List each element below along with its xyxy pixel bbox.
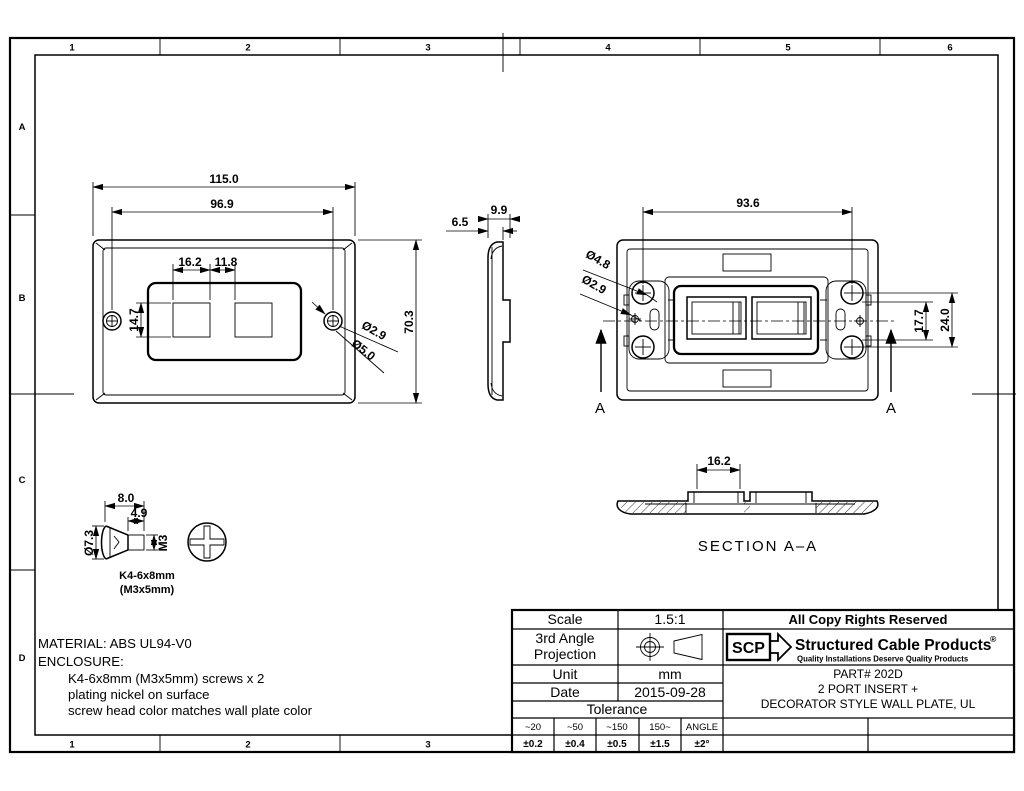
dim-boss-dia: Ø4.8 xyxy=(583,247,613,272)
dim-thread-length: 4.9 xyxy=(131,506,148,520)
dim-overall-height: 70.3 xyxy=(402,310,416,334)
screw-side-view xyxy=(102,526,145,559)
scp-logo-text: SCP xyxy=(732,640,765,657)
tolerance-value: ±0.5 xyxy=(607,739,627,750)
dim-port-gap: 11.8 xyxy=(215,255,238,269)
section-title: SECTION A–A xyxy=(698,538,818,555)
rear-view: A A 93.6 Ø4.8 Ø2.9 17.7 24.0 xyxy=(579,196,958,417)
tolerance-value: ±2° xyxy=(694,739,709,750)
note-item2: plating nickel on surface xyxy=(68,687,209,702)
tolerance-value: ±0.2 xyxy=(523,739,543,750)
side-profile xyxy=(488,242,510,400)
rear-port-right xyxy=(752,297,811,339)
keystone-port-left xyxy=(173,303,210,337)
screw-head-right xyxy=(324,312,342,330)
drawing-canvas: 1 2 3 4 5 6 1 2 3 A B C D xyxy=(0,0,1024,791)
section-hatch-left xyxy=(621,502,686,513)
zone-label: 1 xyxy=(69,740,75,751)
tolerance-header: ~20 xyxy=(525,722,541,733)
latch-tab-bottom xyxy=(723,370,771,387)
dim-front-depth: 6.5 xyxy=(452,215,469,229)
section-hatch-right xyxy=(816,502,874,513)
dim-screw-span: 96.9 xyxy=(210,197,234,211)
zone-label: 2 xyxy=(245,740,250,751)
note-material: MATERIAL: ABS UL94-V0 xyxy=(38,636,192,651)
note-item1: K4-6x8mm (M3x5mm) screws x 2 xyxy=(68,671,264,686)
drawing-sheet: 1 2 3 4 5 6 1 2 3 A B C D xyxy=(0,0,1024,791)
dim-rear-hole-dia: Ø2.9 xyxy=(579,272,609,297)
rear-plate-outline xyxy=(617,240,878,400)
projection-label-line1: 3rd Angle xyxy=(535,630,594,646)
screw-label-line1: K4-6x8mm xyxy=(119,570,175,582)
unit-value: mm xyxy=(658,666,681,682)
dim-port-width: 16.2 xyxy=(178,255,202,269)
zone-label: D xyxy=(19,653,26,664)
dim-screw-length: 8.0 xyxy=(118,491,135,505)
tolerance-header: ~150 xyxy=(606,722,627,733)
section-hatch-middle xyxy=(744,502,750,513)
date-value: 2015-09-28 xyxy=(634,684,706,700)
side-view: 9.9 6.5 xyxy=(446,203,520,400)
dim-thread-size: M3 xyxy=(156,534,170,551)
screw-detail: 8.0 4.9 Ø7.3 M3 K4-6x8mm (M3x5mm) xyxy=(82,491,226,596)
front-dim-lines xyxy=(93,182,422,403)
notes-block: MATERIAL: ABS UL94-V0 ENCLOSURE: K4-6x8m… xyxy=(38,636,313,718)
registered-mark: ® xyxy=(990,634,997,644)
tolerance-value: ±0.4 xyxy=(565,739,585,750)
dim-section-opening: 16.2 xyxy=(707,454,731,468)
title-block: Scale 1.5:1 3rd Angle Projection Unit mm… xyxy=(512,610,1014,752)
mounting-wing-left xyxy=(624,281,675,359)
dim-thickness: 9.9 xyxy=(491,203,508,217)
tolerance-header: ~50 xyxy=(567,722,583,733)
scale-label: Scale xyxy=(547,611,582,627)
dim-hole-dia: Ø2.9 xyxy=(359,318,389,343)
zone-label: B xyxy=(19,293,26,304)
part-number: PART# 202D xyxy=(833,667,903,681)
dim-screw-head-dia: Ø7.3 xyxy=(82,530,96,556)
zone-label: 1 xyxy=(69,43,75,54)
brand-name: Structured Cable Products xyxy=(795,637,991,654)
note-enclosure: ENCLOSURE: xyxy=(38,654,124,669)
zone-label: 2 xyxy=(245,43,250,54)
dim-port-height: 14.7 xyxy=(127,308,141,332)
dim-boss-pitch: 24.0 xyxy=(938,308,952,332)
dim-overall-width: 115.0 xyxy=(209,172,239,186)
front-view: 115.0 96.9 16.2 11.8 14.7 70.3 Ø2.9 Ø5.0 xyxy=(93,172,422,403)
latch-tab-top xyxy=(723,254,771,271)
zone-label: C xyxy=(19,475,26,486)
screw-label-line2: (M3x5mm) xyxy=(120,584,175,596)
tolerance-value: ±1.5 xyxy=(650,739,670,750)
screw-recess-profile xyxy=(114,536,119,549)
zone-label: 5 xyxy=(785,43,791,54)
screw-front-view xyxy=(188,523,226,561)
zone-label: 3 xyxy=(425,740,430,751)
zone-label: 4 xyxy=(605,43,611,54)
zone-label: A xyxy=(19,122,26,133)
date-label: Date xyxy=(550,684,580,700)
keystone-port-right xyxy=(235,303,272,337)
tolerance-label: Tolerance xyxy=(587,701,648,717)
note-item3: screw head color matches wall plate colo… xyxy=(68,703,313,718)
part-desc-line1: 2 PORT INSERT + xyxy=(818,682,918,696)
unit-label: Unit xyxy=(553,666,578,682)
zone-label: 3 xyxy=(425,43,430,54)
rear-port-left xyxy=(687,297,746,339)
part-desc-line2: DECORATOR STYLE WALL PLATE, UL xyxy=(761,697,976,711)
projection-label-line2: Projection xyxy=(534,646,596,662)
tolerance-header: 150~ xyxy=(649,722,671,733)
side-corner-curve-bottom xyxy=(491,383,502,396)
copyright-text: All Copy Rights Reserved xyxy=(789,612,948,627)
section-view: 16.2 SECTION A–A xyxy=(617,454,878,555)
dim-opening-height: 17.7 xyxy=(912,309,926,333)
zone-label: 6 xyxy=(947,43,952,54)
side-corner-curve-top xyxy=(491,246,502,259)
section-letter-right: A xyxy=(886,400,896,417)
section-letter-left: A xyxy=(595,400,605,417)
brand-tagline: Quality Installations Deserve Quality Pr… xyxy=(797,655,969,664)
insert-opening xyxy=(148,283,301,360)
screw-head-left xyxy=(103,312,121,330)
scale-value: 1.5:1 xyxy=(654,611,685,627)
dim-head-dia: Ø5.0 xyxy=(349,336,378,363)
dim-rear-screw-span: 93.6 xyxy=(736,196,760,210)
tolerance-header: ANGLE xyxy=(686,722,718,733)
